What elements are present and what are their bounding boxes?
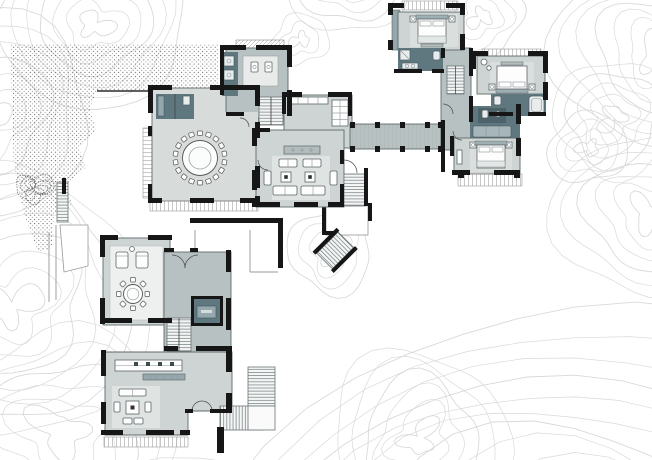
south-terrace — [104, 437, 188, 447]
console-table — [284, 146, 320, 154]
lower-court — [326, 205, 368, 235]
entry-mat — [243, 56, 278, 86]
desk — [457, 150, 462, 164]
retaining-wall — [190, 218, 283, 223]
floor-plan-canvas — [0, 0, 652, 460]
wc-fixture — [482, 110, 488, 118]
wc-fixture — [433, 51, 440, 60]
balcony — [458, 174, 522, 186]
wing-corridor — [441, 48, 471, 150]
east-exterior-stair — [344, 174, 366, 206]
bookshelf — [332, 100, 348, 126]
daybed — [473, 126, 511, 137]
wc-fixture — [494, 96, 501, 105]
floor-plan-sheet — [0, 0, 652, 460]
garden-terrace — [60, 225, 88, 272]
round-dining-table — [124, 285, 143, 304]
retaining-wall — [278, 218, 283, 268]
wc-fixture — [183, 96, 190, 105]
round-banquet-table — [183, 141, 218, 176]
